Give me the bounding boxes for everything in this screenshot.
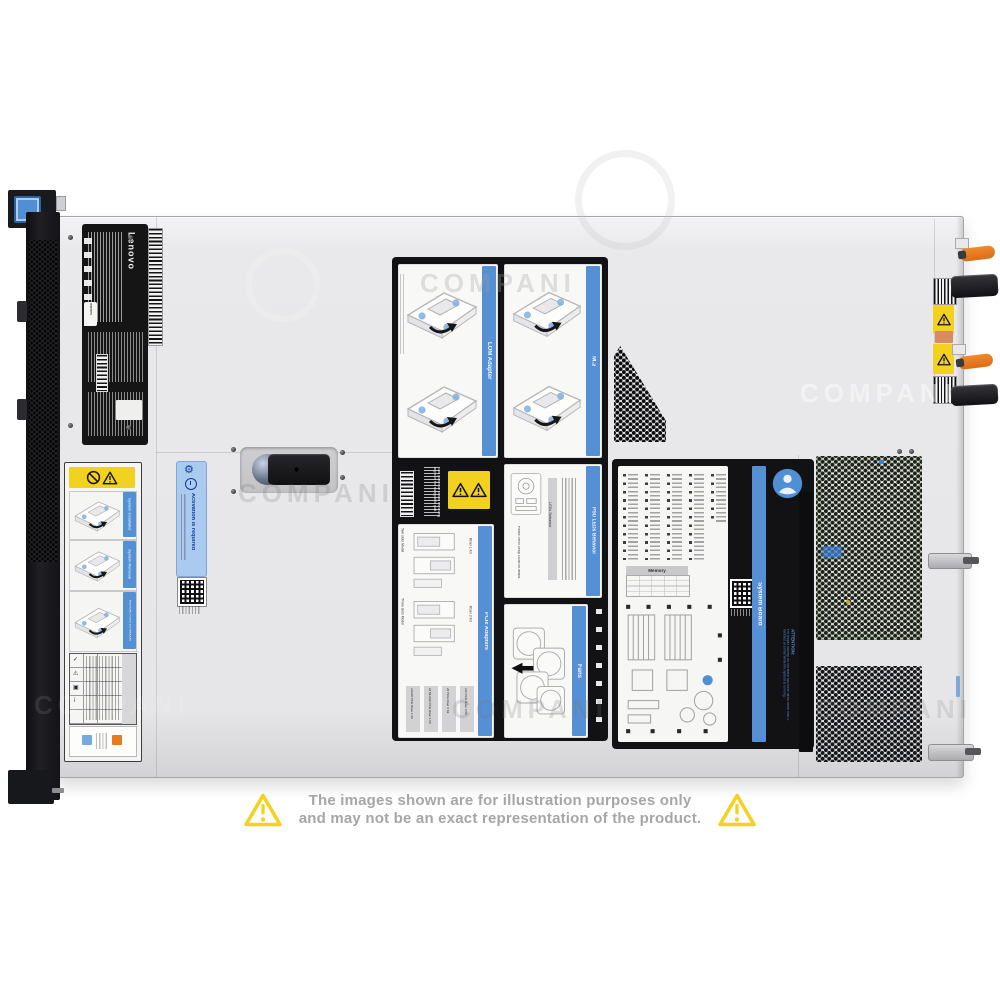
table-fine-print <box>86 656 120 720</box>
psu-title: PSU LEDs Behavior <box>590 507 595 554</box>
pcie-title-band: PCIe Adapters <box>478 526 492 736</box>
legend-squares <box>667 474 670 560</box>
disclaimer-line1: The images shown are for illustration pu… <box>299 792 702 810</box>
memory-table-grid <box>626 575 690 597</box>
pcie-kit-label: x16/x8 PCIe Riser 1 Kit <box>406 686 417 721</box>
warning-no-lift-label <box>69 467 135 488</box>
screw <box>340 475 345 480</box>
vent-blue-cluster <box>822 546 842 558</box>
card-caption-lines <box>400 274 404 354</box>
warning-triangle-left-icon <box>243 792 283 828</box>
section-title: System Installation <box>127 498 131 532</box>
m2-diagram-2 <box>506 364 584 450</box>
power-warning-text: Turn power off before removing any non h… <box>424 467 440 517</box>
pcie-kit-bar: x8 PCIe Riser 2 Kit <box>442 686 456 732</box>
disclaimer-line2: and may not be an exact representation o… <box>299 810 702 828</box>
disclaimer-note: The images shown are for illustration pu… <box>0 786 1000 834</box>
system-board-band: System Board <box>752 466 766 742</box>
attention-title: ATTENTION: <box>790 629 795 659</box>
psu-title-band: PSU LEDs Behavior <box>586 466 600 596</box>
attention-body: For proper cooling, do not leave top cov… <box>774 629 789 733</box>
server-product-photo: Lenovo Intertek System Installation <box>0 0 1000 1000</box>
activation-required-label: ⚙ Activation is required <box>176 461 207 577</box>
warning-triangle-right-icon <box>717 792 757 828</box>
bezel-clip-lower <box>17 399 27 420</box>
gear-icon: ⚙ <box>184 463 194 476</box>
rear-warning-label-1 <box>933 305 954 334</box>
pcie-riser2: Riser 2 Kit <box>468 606 472 650</box>
pcie-kit-label: x8 PCIe Riser 2 Kit <box>442 686 453 715</box>
vent-amber-dot <box>846 600 850 604</box>
pcie-model-three: Three slots Model <box>400 598 404 658</box>
activation-qr-caption <box>179 606 201 614</box>
lom-diagram-1 <box>400 272 480 356</box>
legend-text <box>694 474 704 560</box>
m2-card: M.2 <box>504 264 602 458</box>
screw <box>126 425 131 430</box>
latch-handle <box>268 454 330 485</box>
warning-triangle-icon <box>937 353 951 366</box>
system-board-legend: Memory <box>618 466 728 742</box>
psu-note: Please check Setup Guide for details. <box>512 526 520 586</box>
pcie-kit-bar: x16 PCIe Riser 2 Kit <box>460 686 474 732</box>
legend-text <box>716 474 726 524</box>
psu1-handle <box>950 274 998 298</box>
fans-diagram <box>506 610 570 732</box>
rear-opening-slot <box>799 492 813 752</box>
lom-adapter-card: LOM Adapter <box>398 264 498 458</box>
clock-icon <box>185 478 197 490</box>
intertek-badge: Intertek <box>84 302 97 326</box>
screw <box>231 489 236 494</box>
warning-triangle-icon <box>452 482 469 498</box>
screw <box>897 449 902 454</box>
activation-fine-print <box>181 494 187 560</box>
system-board-diagram <box>620 600 726 738</box>
fans-title-band: Fans <box>572 606 586 736</box>
legend-squares <box>623 474 626 560</box>
legend-text <box>628 474 638 560</box>
section-system-installation: System Installation <box>69 491 137 540</box>
led-square-icon: ▣ <box>73 684 79 691</box>
warning-triangle-icon <box>102 471 118 485</box>
hot-part-warning-label <box>448 471 490 509</box>
m2-diagram-1 <box>506 270 584 356</box>
m2-title: M.2 <box>590 356 597 367</box>
rear-latch-mid <box>928 553 972 569</box>
front-port-nub <box>56 196 66 211</box>
fans-title: Fans <box>576 664 582 678</box>
bottom-fine-print <box>96 733 108 749</box>
section-title-band: System Installation <box>123 492 136 537</box>
memory-header-bar: Memory <box>626 566 688 575</box>
activation-qr-code <box>178 578 206 606</box>
lenovo-regulatory-label: Lenovo Intertek <box>82 224 148 445</box>
section-remove-front-io: Remove Front I/O Module <box>69 591 137 652</box>
screw <box>68 423 73 428</box>
section-system-removal: System Removal <box>69 540 137 591</box>
screw <box>340 450 345 455</box>
power-off-warning-strip: Turn power off before removing any non h… <box>398 463 494 521</box>
pcie-riser1: Riser 1 Kit <box>468 538 472 582</box>
section-title: Remove Front I/O Module <box>128 600 132 641</box>
pcie-model-two: Two slots Model <box>400 528 404 588</box>
pcie-title: PCIe Adapters <box>482 612 488 650</box>
riser-diagram-2 <box>408 596 464 660</box>
blue-swatch <box>82 735 92 745</box>
section-title-band: Remove Front I/O Module <box>123 592 136 649</box>
legend-squares <box>645 474 648 560</box>
screw <box>128 235 133 240</box>
screw <box>909 449 914 454</box>
rear-warning-label-2 <box>933 344 954 374</box>
riser-diagram-1 <box>408 528 464 592</box>
intertek-text: Intertek <box>84 303 92 315</box>
system-board-title: System Board <box>756 582 763 626</box>
activation-title: Activation is required <box>189 493 195 573</box>
legend-squares <box>711 474 714 524</box>
lom-title-band: LOM Adapter <box>482 266 496 456</box>
rear-orange-label <box>935 331 953 343</box>
legend-text <box>650 474 660 560</box>
warning-triangle-icon <box>470 482 487 498</box>
attention-note: ATTENTION: For proper cooling, do not le… <box>774 629 802 733</box>
psu-led-rows <box>562 478 576 580</box>
bezel-vent-grille <box>29 240 57 562</box>
warning-barcode <box>400 471 414 517</box>
led-check-icon: ✓ <box>73 656 78 663</box>
callout-squares-column <box>596 609 602 735</box>
screw <box>231 447 236 452</box>
section-title: System Removal <box>127 549 131 579</box>
removal-diagram <box>70 543 122 588</box>
legend-text <box>672 474 682 560</box>
psu-table-header: LEDs Behavior <box>548 478 552 527</box>
serial-barcode-label <box>148 228 163 346</box>
orange-swatch <box>112 735 122 745</box>
lom-title: LOM Adapter <box>486 342 492 379</box>
psu2-release-lever <box>957 353 993 370</box>
label-white-box <box>116 400 142 420</box>
rear-latch-bottom <box>928 744 974 761</box>
strip-bottom-label <box>69 726 137 757</box>
screw <box>68 235 73 240</box>
front-io-diagram <box>70 598 122 646</box>
m2-title-band: M.2 <box>586 266 600 456</box>
psu-table-header-bar: LEDs Behavior <box>548 478 557 580</box>
led-info-icon: i <box>74 698 75 704</box>
legend-squares <box>689 474 692 560</box>
led-legend-table: ✓ ⚠ ▣ i <box>69 653 137 725</box>
psu2-tab <box>952 344 966 355</box>
warning-triangle-icon <box>937 313 951 326</box>
installation-diagram <box>70 493 122 538</box>
fans-card: Fans <box>504 604 588 738</box>
rear-vent-grille-lower <box>816 666 922 762</box>
front-service-label: System Installation System Removal Remov… <box>64 462 142 762</box>
system-board-panel: Memory System Board Service Information … <box>612 459 814 749</box>
psu-leds-card: LEDs Behavior Please check Setup Guide f… <box>504 464 602 598</box>
pcie-kit-bar: x16/x8 PCIe Riser 1 Kit <box>406 686 420 732</box>
service-label-panel: LOM Adapter M.2 Turn power off before re… <box>392 257 608 741</box>
pcie-kit-label: x16 PCIe Riser 2 Kit <box>460 686 471 717</box>
pcie-adapters-card: Two slots Model Riser 1 Kit Three slots … <box>398 524 494 738</box>
top-cover-release-latch <box>240 447 338 493</box>
memory-header: Memory <box>648 568 666 573</box>
pcie-kit-label: x8 ML2/x8 PCIe Riser 1 Kit <box>424 686 435 726</box>
lom-diagram-2 <box>400 366 480 450</box>
bezel-clip-upper <box>17 301 27 322</box>
vent-blue-led <box>879 460 884 464</box>
pcie-kit-bar: x8 ML2/x8 PCIe Riser 1 Kit <box>424 686 438 732</box>
no-lift-icon <box>86 470 101 485</box>
psu2-handle <box>951 384 999 406</box>
psu-diagram <box>508 470 544 518</box>
rear-blue-tab <box>956 676 960 697</box>
led-warning-icon: ⚠ <box>73 670 78 677</box>
psu1-release-lever <box>959 245 995 262</box>
qr-caption-lines <box>731 609 750 616</box>
section-title-band: System Removal <box>123 541 136 588</box>
label-inner-barcode <box>96 354 108 392</box>
